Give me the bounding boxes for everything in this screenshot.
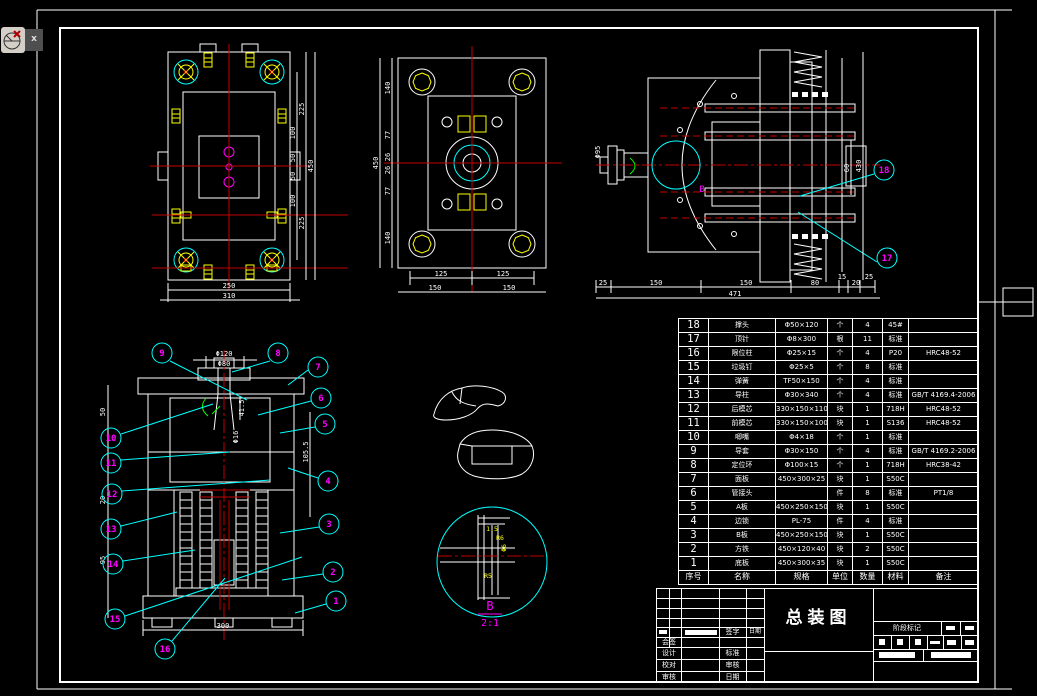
- bom-cell: [909, 333, 979, 347]
- bom-cell: 450×120×40: [776, 543, 828, 557]
- bom-cell: 450×250×150: [776, 529, 828, 543]
- bom-cell: 块: [828, 473, 853, 487]
- countersign-label: 会签: [657, 637, 681, 647]
- svg-text:77: 77: [384, 131, 392, 139]
- bom-cell: 块: [828, 417, 853, 431]
- bom-cell: TF50×150: [776, 375, 828, 389]
- circle-cross-glyph: [1, 27, 25, 53]
- bom-cell: 标准: [883, 431, 909, 445]
- svg-text:225: 225: [298, 217, 306, 230]
- bom-cell: 8: [853, 361, 883, 375]
- bom-cell: Φ25×5: [776, 361, 828, 375]
- bom-cell: 个: [828, 431, 853, 445]
- svg-text:15: 15: [838, 273, 846, 281]
- svg-text:17: 17: [882, 254, 893, 264]
- bom-cell: 1: [853, 459, 883, 473]
- svg-text:Φ6: Φ6: [500, 544, 508, 552]
- bom-cell: 8: [679, 459, 709, 473]
- svg-text:140: 140: [384, 82, 392, 95]
- bom-cell: 18: [679, 319, 709, 333]
- bom-cell: 弹簧: [709, 375, 776, 389]
- redacted-text-block: [947, 640, 956, 645]
- bom-header: 单位: [828, 571, 853, 585]
- bom-cell: 450×300×25: [776, 473, 828, 487]
- bom-cell: [776, 487, 828, 501]
- review-label: 审核: [719, 660, 746, 670]
- bom-cell: 标准: [883, 515, 909, 529]
- svg-text:150: 150: [650, 279, 663, 287]
- bom-cell: [909, 473, 979, 487]
- bom-cell: Φ100×15: [776, 459, 828, 473]
- bom-cell: 1: [853, 529, 883, 543]
- bom-cell: S50C: [883, 529, 909, 543]
- svg-text:125: 125: [497, 270, 510, 278]
- bom-cell: 后模芯: [709, 403, 776, 417]
- bom-cell: [909, 557, 979, 571]
- standard-label: 标准: [719, 648, 746, 658]
- date2-label: 日期: [719, 672, 746, 682]
- svg-text:14: 14: [108, 560, 119, 570]
- view4-dimensions: Φ120 Φ80 41.5 Φ16 105.5 300 50 20 95: [99, 350, 310, 636]
- bom-cell: 面板: [709, 473, 776, 487]
- bom-cell: 块: [828, 529, 853, 543]
- svg-text:18: 18: [879, 166, 890, 176]
- bom-cell: GB/T 4169.2-2006: [909, 445, 979, 459]
- redacted-text-block: [685, 630, 717, 635]
- bom-cell: 330×150×110: [776, 403, 828, 417]
- svg-text:25: 25: [599, 279, 607, 287]
- bom-cell: 3: [679, 529, 709, 543]
- bom-cell: 330×150×100: [776, 417, 828, 431]
- bom-cell: 2: [853, 543, 883, 557]
- bom-cell: Φ50×120: [776, 319, 828, 333]
- bom-cell: 17: [679, 333, 709, 347]
- bom-cell: 45#: [883, 319, 909, 333]
- bom-cell: GB/T 4169.4-2006: [909, 389, 979, 403]
- bom-cell: 5: [679, 501, 709, 515]
- bom-cell: 4: [679, 515, 709, 529]
- front-view: Φ120 Φ80 41.5 Φ16 105.5 300 50 20 95 9 8…: [99, 343, 346, 659]
- bom-header: 序号: [679, 571, 709, 585]
- bom-cell: 16: [679, 347, 709, 361]
- svg-text:100: 100: [289, 127, 297, 140]
- bom-cell: 个: [828, 347, 853, 361]
- svg-text:5: 5: [322, 420, 327, 430]
- svg-text:Φ80: Φ80: [218, 360, 231, 368]
- bom-cell: 1: [853, 501, 883, 515]
- bom-header: 规格: [776, 571, 828, 585]
- svg-text:Φ120: Φ120: [216, 350, 233, 358]
- svg-text:3: 3: [326, 520, 331, 530]
- part-sketches: [434, 386, 534, 479]
- bom-cell: 管接头: [709, 487, 776, 501]
- bom-cell: 718H: [883, 459, 909, 473]
- svg-text:77: 77: [384, 187, 392, 195]
- svg-text:300: 300: [217, 622, 230, 630]
- svg-text:6: 6: [318, 394, 323, 404]
- bom-cell: [909, 431, 979, 445]
- bom-cell: 11: [853, 333, 883, 347]
- bom-cell: 个: [828, 389, 853, 403]
- bom-cell: HRC38-42: [909, 459, 979, 473]
- bom-cell: 8: [853, 487, 883, 501]
- stage-mark-label: 阶段标记: [873, 623, 941, 633]
- bom-cell: 4: [853, 515, 883, 529]
- svg-text:26: 26: [384, 166, 392, 174]
- bom-cell: HRC48-52: [909, 347, 979, 361]
- bom-cell: 1: [853, 473, 883, 487]
- bom-cell: HRC48-52: [909, 417, 979, 431]
- svg-text:B: B: [486, 599, 493, 613]
- bom-header: 名称: [709, 571, 776, 585]
- bom-cell: [909, 543, 979, 557]
- bom-cell: 4: [853, 347, 883, 361]
- svg-text:50: 50: [289, 172, 297, 180]
- parts-table: 18撑头Φ50×120个445# 17顶针Φ8×300根11标准 16限位柱Φ2…: [678, 318, 979, 585]
- svg-text:150: 150: [503, 284, 516, 292]
- bom-cell: S50C: [883, 501, 909, 515]
- bom-cell: 450×250×150: [776, 501, 828, 515]
- redacted-text-block: [897, 639, 903, 645]
- bom-cell: 4: [853, 319, 883, 333]
- svg-text:50: 50: [99, 408, 107, 416]
- redacted-text-block: [946, 626, 955, 630]
- svg-text:10: 10: [106, 434, 117, 444]
- svg-text:41.5: 41.5: [238, 400, 246, 417]
- svg-text:Φ16: Φ16: [232, 431, 240, 444]
- bom-cell: 14: [679, 375, 709, 389]
- bom-cell: 4: [853, 375, 883, 389]
- bom-cell: Φ25×15: [776, 347, 828, 361]
- bom-cell: 标准: [883, 333, 909, 347]
- bom-cell: [909, 501, 979, 515]
- bom-cell: [909, 361, 979, 375]
- redacted-text-block: [965, 626, 974, 630]
- svg-text:26: 26: [384, 153, 392, 161]
- svg-text:16: 16: [160, 645, 171, 655]
- bom-cell: 标准: [883, 389, 909, 403]
- redacted-text-block: [879, 639, 885, 645]
- bom-cell: 导套: [709, 445, 776, 459]
- bom-cell: 边锁: [709, 515, 776, 529]
- bom-cell: 块: [828, 403, 853, 417]
- bom-cell: 垃圾钉: [709, 361, 776, 375]
- bom-cell: [909, 375, 979, 389]
- bom-cell: 1: [679, 557, 709, 571]
- svg-text:450: 450: [372, 157, 380, 170]
- audit-label: 审核: [657, 672, 681, 682]
- bom-cell: 4: [853, 389, 883, 403]
- bom-cell: 限位柱: [709, 347, 776, 361]
- bom-cell: 个: [828, 459, 853, 473]
- bom-cell: 导柱: [709, 389, 776, 403]
- detail-view-b: 1.5 R6 Φ6 R5 B 2:1: [437, 507, 548, 629]
- bom-cell: 13: [679, 389, 709, 403]
- redacted-text-block: [930, 641, 940, 644]
- bom-cell: S50C: [883, 557, 909, 571]
- svg-text:471: 471: [729, 290, 742, 298]
- bom-cell: 底板: [709, 557, 776, 571]
- bom-cell: 个: [828, 445, 853, 459]
- section-view: B 18 17 25 150 150 80 15 20 25 471: [594, 50, 897, 298]
- svg-text:7: 7: [315, 363, 320, 373]
- bom-cell: 标准: [883, 375, 909, 389]
- svg-text:450: 450: [307, 160, 315, 173]
- bom-header: 数量: [853, 571, 883, 585]
- bom-cell: Φ4×18: [776, 431, 828, 445]
- svg-text:50: 50: [289, 154, 297, 162]
- bom-cell: S50C: [883, 543, 909, 557]
- bom-cell: Φ30×150: [776, 445, 828, 459]
- cad-viewport: 250 310 100 50 50 100 225 225 450: [0, 0, 1037, 696]
- bom-cell: 撑头: [709, 319, 776, 333]
- bom-cell: 1: [853, 557, 883, 571]
- svg-text:Φ95: Φ95: [594, 146, 602, 159]
- detail-label: B 2:1: [478, 599, 502, 629]
- svg-text:12: 12: [107, 490, 118, 500]
- svg-text:9: 9: [159, 349, 164, 359]
- bom-cell: 标准: [883, 487, 909, 501]
- bom-cell: [909, 529, 979, 543]
- svg-text:150: 150: [740, 279, 753, 287]
- bom-header: 材料: [883, 571, 909, 585]
- bom-cell: 个: [828, 361, 853, 375]
- svg-text:8: 8: [275, 349, 280, 359]
- bom-cell: 2: [679, 543, 709, 557]
- bom-cell: 6: [679, 487, 709, 501]
- svg-text:100: 100: [289, 195, 297, 208]
- bom-cell: HRC48-52: [909, 403, 979, 417]
- svg-text:R5: R5: [484, 572, 492, 580]
- bom-cell: PL-75: [776, 515, 828, 529]
- svg-text:20: 20: [852, 279, 860, 287]
- bom-cell: 根: [828, 333, 853, 347]
- plan-view-2: 125 125 150 150 140 77 26 26 77 140 450: [372, 46, 562, 292]
- bom-cell: Φ8×300: [776, 333, 828, 347]
- svg-text:430: 430: [855, 160, 863, 173]
- bom-cell: 1: [853, 403, 883, 417]
- bom-cell: PT1/8: [909, 487, 979, 501]
- drawing-title: 总装图: [764, 603, 873, 628]
- designer-label: 设计: [657, 648, 681, 658]
- svg-text:80: 80: [811, 279, 819, 287]
- svg-text:4: 4: [325, 477, 331, 487]
- bom-cell: 件: [828, 487, 853, 501]
- bom-cell: 4: [853, 445, 883, 459]
- svg-text:25: 25: [865, 273, 873, 281]
- bom-cell: 718H: [883, 403, 909, 417]
- svg-text:105.5: 105.5: [302, 441, 310, 462]
- svg-text:60: 60: [843, 164, 851, 172]
- sign-label: 签字: [719, 627, 746, 637]
- redacted-text-block: [879, 652, 915, 658]
- bom-cell: 块: [828, 557, 853, 571]
- bom-cell: 12: [679, 403, 709, 417]
- svg-text:13: 13: [106, 525, 117, 535]
- redacted-text-block: [965, 640, 974, 645]
- bom-cell: 件: [828, 515, 853, 529]
- redacted-text-block: [915, 639, 921, 645]
- bom-cell: 个: [828, 319, 853, 333]
- bom-cell: 块: [828, 543, 853, 557]
- date-label: 日期: [746, 627, 764, 637]
- svg-text:150: 150: [429, 284, 442, 292]
- redacted-text-block: [659, 630, 667, 634]
- title-block: 签字 日期 会签 设计 标准 校对 审核 审核 日期 阶段标记 总装图: [656, 588, 978, 682]
- svg-text:310: 310: [223, 292, 236, 300]
- bom-cell: Φ30×340: [776, 389, 828, 403]
- ucs-disabled-icon[interactable]: [1, 27, 25, 53]
- view3-dimensions: 25 150 150 80 15 20 25 471 60 430 Φ95: [594, 52, 880, 298]
- plan-view-1: 250 310 100 50 50 100 225 225 450: [150, 44, 348, 302]
- bom-cell: S50C: [883, 473, 909, 487]
- bom-cell: 1: [853, 417, 883, 431]
- svg-text:225: 225: [298, 103, 306, 116]
- svg-text:B: B: [699, 185, 704, 195]
- bom-cell: 方铁: [709, 543, 776, 557]
- bom-cell: 9: [679, 445, 709, 459]
- bom-cell: 450×300×35: [776, 557, 828, 571]
- svg-text:2:1: 2:1: [481, 618, 499, 629]
- bom-cell: 10: [679, 431, 709, 445]
- bom-cell: 顶针: [709, 333, 776, 347]
- bom-cell: 块: [828, 501, 853, 515]
- svg-text:1.5: 1.5: [486, 525, 498, 533]
- bom-cell: 定位环: [709, 459, 776, 473]
- bom-cell: 标准: [883, 361, 909, 375]
- bom-cell: [909, 515, 979, 529]
- close-button[interactable]: x: [25, 29, 43, 51]
- bom-cell: 15: [679, 361, 709, 375]
- bom-cell: 标准: [883, 445, 909, 459]
- bom-header: 备注: [909, 571, 979, 585]
- svg-text:11: 11: [106, 459, 117, 469]
- bom-cell: 前模芯: [709, 417, 776, 431]
- bom-cell: 7: [679, 473, 709, 487]
- svg-text:R6: R6: [496, 534, 504, 542]
- bom-cell: B板: [709, 529, 776, 543]
- svg-text:1: 1: [333, 597, 338, 607]
- svg-text:2: 2: [330, 568, 335, 578]
- bom-cell: 1: [853, 431, 883, 445]
- svg-text:140: 140: [384, 232, 392, 245]
- svg-text:250: 250: [223, 282, 236, 290]
- bom-cell: S136: [883, 417, 909, 431]
- bom-cell: P20: [883, 347, 909, 361]
- svg-text:125: 125: [435, 270, 448, 278]
- bom-cell: 唧嘴: [709, 431, 776, 445]
- redacted-text-block: [931, 652, 971, 658]
- checker-label: 校对: [657, 660, 681, 670]
- bom-cell: 11: [679, 417, 709, 431]
- balloon-17: 17: [798, 212, 897, 268]
- bom-cell: 个: [828, 375, 853, 389]
- bom-cell: [909, 319, 979, 333]
- bom-cell: A板: [709, 501, 776, 515]
- svg-text:15: 15: [110, 615, 121, 625]
